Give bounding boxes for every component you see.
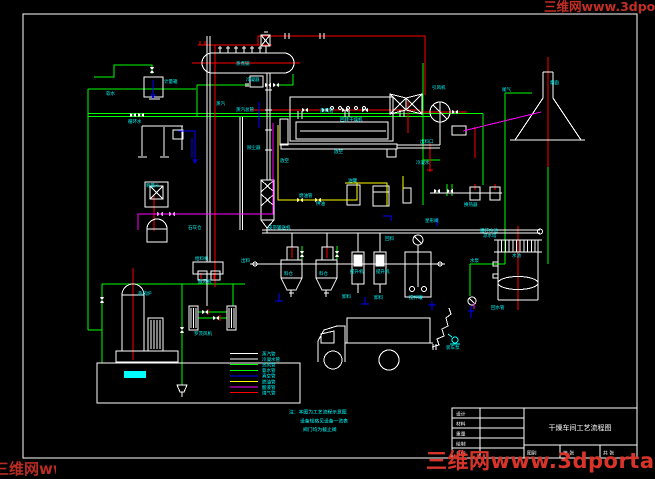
relief-vessel — [261, 32, 270, 53]
loading-hose — [432, 308, 451, 350]
induced-draft-fan — [430, 102, 466, 135]
legend-label: 热风管 — [262, 362, 276, 369]
pipe-label: 烟囱 — [550, 79, 559, 86]
pipe-label: 蒸汽总管 — [236, 106, 254, 113]
pipe-label: 搅拌罐 — [409, 294, 423, 301]
pipe-label: 鼓风机 — [198, 278, 212, 285]
pipe-label: 凉水塔 — [483, 232, 497, 239]
discharge-funnel — [177, 385, 187, 397]
bucket-elevators — [352, 233, 386, 293]
process-flow-diagram: 蒸汽管冷凝水管热风管氨水管真空管燃油管酸液管煤气管 注：本图为工艺流程示意图 设… — [0, 0, 655, 474]
pipe-label: 放空 — [280, 157, 289, 164]
pipe-label: 回转干燥机 — [340, 116, 363, 123]
pipe-label: 热风炉 — [138, 290, 152, 297]
yellow-piping — [278, 125, 403, 206]
note-line: 设备规格见设备一览表 — [300, 418, 348, 425]
pipe-label: 冷凝器 — [246, 76, 260, 83]
pipe-label: 循环水池 — [480, 227, 498, 234]
title-block-row-label: 日期 — [456, 452, 466, 458]
pipe-label: 计量箱 — [164, 78, 178, 85]
pipe-label: 装车泵 — [446, 344, 460, 351]
pipe-label: 除尘器 — [247, 144, 261, 151]
dome-feeder — [147, 219, 167, 242]
legend-label: 真空管 — [262, 373, 276, 380]
pipe-label: 提升机 — [350, 268, 364, 275]
pipe-label: 罗茨风机 — [194, 330, 212, 337]
downcomer-pipes — [265, 73, 272, 180]
water-pump — [468, 297, 476, 305]
highlight-label-block — [124, 371, 146, 378]
legend-label: 氨水管 — [262, 367, 276, 374]
pipe-label: 放空 — [334, 148, 343, 155]
pipe-label: 给料机 — [195, 255, 209, 262]
pipe-label: 石灰仓 — [188, 224, 202, 231]
drawing-notes: 注：本图为工艺流程示意图 设备规格见设备一览表 阀门均为截止阀 — [289, 409, 348, 434]
pipe-label: 星形阀 — [425, 217, 439, 224]
legend-label: 冷凝水管 — [262, 356, 280, 363]
pipe-label: 皮带输送机 — [268, 224, 291, 231]
pipe-label: 出料 — [241, 257, 250, 264]
pipe-label: 回水管 — [491, 304, 505, 311]
legend-label: 蒸汽管 — [262, 350, 276, 357]
legend-label: 酸液管 — [262, 384, 276, 391]
pipe-label: 水池 — [512, 252, 521, 259]
rotary-dryer — [280, 97, 440, 157]
title-block-row-label: 材料 — [456, 421, 466, 428]
pipe-label: 出料口 — [420, 138, 434, 145]
cad-application-canvas: { "colors": { "background": "#000000", "… — [0, 0, 655, 474]
pipe-label: 热风管 — [320, 107, 334, 114]
title-block: 设计 材料 重量 绘制 日期 图别 第 张 共 张 干燥车间工艺流程图 — [452, 408, 637, 458]
pipe-label: 尾气 — [502, 86, 511, 93]
pipe-label: 换热器 — [464, 201, 478, 208]
note-line: 注：本图为工艺流程示意图 — [289, 409, 347, 416]
red-piping — [133, 36, 548, 360]
pipe-label: 料仓 — [284, 270, 293, 277]
note-line: 阀门均为截止阀 — [303, 426, 337, 433]
equipment-labels: 计量箱软水蒸煮锅冷凝器循环水蒸汽总管热风管回转干燥机出料口引风机烟囱除尘器放空放… — [106, 60, 559, 351]
drawing-title: 干燥车间工艺流程图 — [549, 423, 612, 432]
title-block-row-label: 重量 — [456, 431, 466, 438]
pipe-label: 供油 — [316, 200, 325, 207]
riser-double-line-2 — [240, 117, 243, 230]
title-block-cell: 第 张 — [563, 450, 574, 457]
belt-conveyor-upper — [262, 230, 540, 233]
title-block-row-label: 绘制 — [456, 441, 466, 448]
title-block-cell: 图别 — [527, 450, 537, 457]
pipe-label: 卸料 — [374, 294, 383, 301]
pipe-label: 冷凝水 — [416, 159, 430, 166]
steam-drum — [202, 46, 294, 73]
pipe-label: 燃油管 — [299, 192, 313, 199]
pipe-label: 回料 — [385, 235, 394, 242]
support-frame — [138, 126, 183, 157]
heat-exchanger-row — [430, 187, 502, 200]
legend-label: 煤气管 — [262, 390, 276, 397]
line-type-legend: 蒸汽管冷凝水管热风管氨水管真空管燃油管酸液管煤气管 — [230, 350, 280, 396]
riser-double-line — [207, 36, 210, 262]
title-block-row-label: 设计 — [456, 411, 466, 418]
pipe-label: 提升机 — [376, 268, 390, 275]
drawing-frame — [23, 14, 637, 458]
truck — [318, 318, 433, 370]
pipe-label: 循环水 — [128, 118, 142, 125]
pipe-label: 水泵 — [470, 257, 479, 264]
pipe-label: 料仓 — [319, 270, 328, 277]
mixer-tank — [405, 235, 431, 297]
loading-pump-glyph — [448, 334, 460, 344]
pipe-label: 蒸汽 — [216, 100, 225, 107]
legend-label: 燃油管 — [262, 378, 276, 385]
equipment-white — [97, 32, 585, 403]
pipe-label: 蒸煮锅 — [236, 60, 250, 67]
cyan-extras — [124, 334, 460, 378]
pipe-label: 引风机 — [432, 84, 446, 91]
pipe-label: 软水 — [106, 90, 115, 97]
fan-transition — [390, 94, 422, 114]
title-block-cell: 共 张 — [603, 450, 614, 457]
pipe-label: 油罐 — [348, 177, 357, 184]
pipe-label: 称量斗 — [146, 182, 160, 189]
pipe-label: 卸料 — [342, 293, 351, 300]
